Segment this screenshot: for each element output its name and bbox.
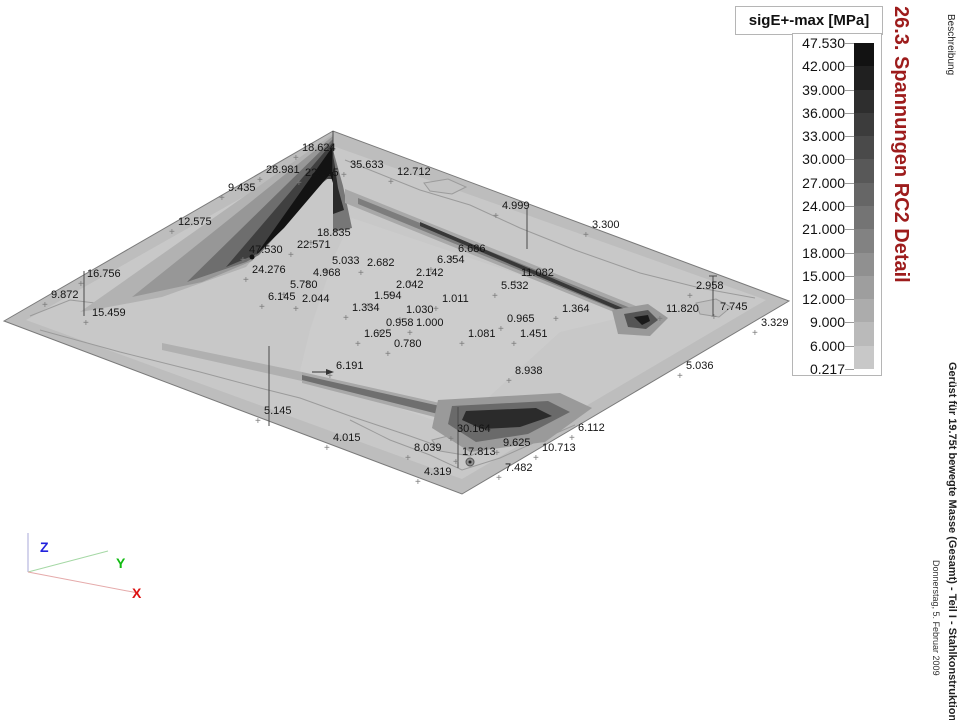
node-marker-icon: + — [42, 301, 48, 311]
legend-scale: 47.53042.00039.00036.00033.00030.00027.0… — [792, 33, 882, 376]
stress-value-label: 5.036 — [686, 360, 714, 372]
node-marker-icon: + — [494, 449, 500, 459]
legend-color-band — [854, 159, 874, 182]
node-marker-icon: + — [506, 377, 512, 387]
stress-value-label: 1.594 — [374, 290, 402, 302]
stress-value-label: 2.044 — [302, 293, 330, 305]
project-title: Gerüst für 19.75t bewegte Masse (Gesamt)… — [946, 362, 958, 720]
stress-value-label: 7.745 — [720, 301, 748, 313]
node-marker-icon: + — [78, 280, 84, 290]
stress-value-label: 4.968 — [313, 267, 341, 279]
node-marker-icon: + — [257, 176, 263, 186]
stress-value-label: 7.482 — [505, 462, 533, 474]
node-marker-icon: + — [657, 315, 663, 325]
node-marker-icon: + — [493, 212, 499, 222]
node-marker-icon: + — [243, 276, 249, 286]
report-page: Z Y X +18.624+28.981+22.195+35.633+12.71… — [0, 0, 960, 720]
stress-value-label: 2.142 — [416, 267, 444, 279]
node-marker-icon: + — [293, 305, 299, 315]
node-marker-icon: + — [459, 340, 465, 350]
node-marker-icon: + — [496, 474, 502, 484]
legend-level-value: 47.530 — [802, 35, 845, 51]
legend-tick — [845, 206, 854, 207]
legend-color-band — [854, 253, 874, 276]
stress-value-label: 1.364 — [562, 303, 590, 315]
legend-color-band — [854, 276, 874, 299]
legend-level-value: 0.217 — [810, 361, 845, 377]
node-marker-icon: + — [583, 231, 589, 241]
node-marker-icon: + — [448, 435, 454, 445]
stress-value-label: 16.756 — [87, 268, 121, 280]
legend-level-value: 39.000 — [802, 82, 845, 98]
stress-value-label: 2.682 — [367, 257, 395, 269]
stress-value-label: 5.780 — [290, 279, 318, 291]
legend-level-value: 18.000 — [802, 245, 845, 261]
stress-value-label: 28.981 — [266, 164, 300, 176]
stress-value-label: 24.276 — [252, 264, 286, 276]
legend-level-value: 6.000 — [810, 338, 845, 354]
node-marker-icon: + — [288, 251, 294, 261]
legend-level-value: 30.000 — [802, 151, 845, 167]
stress-value-label: 9.872 — [51, 289, 79, 301]
node-marker-icon: + — [569, 434, 575, 444]
stress-value-label: 9.435 — [228, 182, 256, 194]
axis-x-label: X — [132, 585, 142, 601]
stress-value-label: 2.958 — [696, 280, 724, 292]
stress-value-label: 1.625 — [364, 328, 392, 340]
legend-tick — [845, 299, 854, 300]
legend-tick — [845, 136, 854, 137]
stress-value-label: 4.015 — [333, 432, 361, 444]
legend-tick — [845, 159, 854, 160]
node-marker-icon: + — [687, 292, 693, 302]
node-marker-icon: + — [492, 292, 498, 302]
legend-color-band — [854, 43, 874, 66]
node-marker-icon: + — [343, 314, 349, 324]
stress-value-label: 1.334 — [352, 302, 380, 314]
stress-value-label: 5.145 — [264, 405, 292, 417]
axis-z-label: Z — [40, 539, 49, 555]
stress-value-label: 6.354 — [437, 254, 465, 266]
legend-color-band — [854, 113, 874, 136]
print-date: Donnerstag, 5. Februar 2009 — [931, 560, 941, 676]
legend-level-value: 12.000 — [802, 291, 845, 307]
stress-value-label: 6.112 — [578, 422, 605, 434]
stress-value-label: 5.532 — [501, 280, 529, 292]
stress-value-label: 3.329 — [761, 317, 789, 329]
node-marker-icon: + — [498, 325, 504, 335]
legend-tick — [845, 253, 854, 254]
legend-color-band — [854, 90, 874, 113]
stress-value-label: 12.712 — [397, 166, 431, 178]
legend-color-band — [854, 346, 874, 369]
stress-value-label: 3.300 — [592, 219, 620, 231]
stress-value-label: 8.039 — [414, 442, 442, 454]
node-marker-icon: + — [385, 350, 391, 360]
legend-level-value: 36.000 — [802, 105, 845, 121]
legend-tick — [845, 276, 854, 277]
legend-color-band — [854, 322, 874, 345]
legend-color-band — [854, 136, 874, 159]
legend-color-band — [854, 229, 874, 252]
legend-level-value: 9.000 — [810, 314, 845, 330]
stress-value-label: 8.938 — [515, 365, 543, 377]
description-column-header: Beschreibung — [945, 14, 956, 75]
stress-value-label: 1.011 — [442, 293, 469, 305]
node-marker-icon: + — [296, 179, 302, 189]
legend-level-value: 27.000 — [802, 175, 845, 191]
stress-value-label: 15.459 — [92, 307, 126, 319]
stress-value-label: 5.033 — [332, 255, 360, 267]
node-marker-icon: + — [511, 340, 517, 350]
stress-value-label: 4.999 — [502, 200, 530, 212]
stress-value-label: 12.575 — [178, 216, 212, 228]
stress-value-label: 1.000 — [416, 317, 444, 329]
node-marker-icon: + — [553, 315, 559, 325]
node-marker-icon: + — [169, 228, 175, 238]
legend-title-text: sigE+-max [MPa] — [749, 12, 869, 29]
legend-tick — [845, 113, 854, 114]
stress-value-label: 30.164 — [457, 423, 491, 435]
stress-value-label: 17.813 — [462, 446, 496, 458]
node-marker-icon: + — [453, 458, 459, 468]
node-marker-icon: + — [355, 340, 361, 350]
node-marker-icon: + — [293, 154, 299, 164]
node-marker-icon: + — [219, 194, 225, 204]
axis-triad-icon: Z Y X — [28, 533, 142, 601]
node-marker-icon: + — [752, 329, 758, 339]
stress-value-label: 1.081 — [468, 328, 496, 340]
node-marker-icon: + — [415, 478, 421, 488]
axis-y-label: Y — [116, 555, 126, 571]
stress-value-label: 18.835 — [317, 227, 351, 239]
stress-value-label: 6.191 — [336, 360, 364, 372]
legend-tick — [845, 66, 854, 67]
stress-value-label: 9.625 — [503, 437, 531, 449]
legend-tick — [845, 322, 854, 323]
legend-color-band — [854, 66, 874, 89]
node-marker-icon: + — [255, 417, 261, 427]
legend-tick — [845, 90, 854, 91]
legend-level-value: 42.000 — [802, 58, 845, 74]
node-marker-icon: + — [327, 372, 333, 382]
node-marker-icon: + — [83, 319, 89, 329]
stress-value-label: 47.530 — [249, 244, 283, 256]
legend-title: sigE+-max [MPa] — [735, 6, 883, 35]
stress-value-label: 35.633 — [350, 159, 384, 171]
stress-value-label: 22.195 — [305, 167, 339, 179]
legend-tick — [845, 229, 854, 230]
node-marker-icon: + — [405, 454, 411, 464]
node-marker-icon: + — [324, 444, 330, 454]
legend-color-band — [854, 183, 874, 206]
legend-level-value: 15.000 — [802, 268, 845, 284]
legend-tick — [845, 43, 854, 44]
stress-value-label: 18.624 — [302, 142, 336, 154]
stress-value-label: 1.451 — [520, 328, 548, 340]
node-marker-icon: + — [533, 454, 539, 464]
node-marker-icon: + — [711, 313, 717, 323]
stress-value-label: 11.082 — [521, 267, 554, 279]
legend-color-band — [854, 206, 874, 229]
stress-value-label: 0.965 — [507, 313, 535, 325]
legend-level-value: 33.000 — [802, 128, 845, 144]
stress-value-label: 1.030 — [406, 304, 434, 316]
node-marker-icon: + — [259, 303, 265, 313]
legend-color-bar — [854, 43, 874, 369]
stress-value-label: 0.780 — [394, 338, 422, 350]
stress-value-label: 4.319 — [424, 466, 452, 478]
stress-value-label: 11.820 — [666, 303, 699, 315]
legend-tick — [845, 183, 854, 184]
node-marker-icon: + — [341, 171, 347, 181]
legend-color-band — [854, 299, 874, 322]
node-marker-icon: + — [677, 372, 683, 382]
stress-value-label: 22.571 — [297, 239, 331, 251]
legend-tick — [845, 346, 854, 347]
legend-tick — [845, 369, 854, 370]
node-marker-icon: + — [240, 256, 246, 266]
node-marker-icon: + — [433, 305, 439, 315]
node-marker-icon: + — [358, 269, 364, 279]
legend-level-value: 21.000 — [802, 221, 845, 237]
legend-level-value: 24.000 — [802, 198, 845, 214]
section-title: 26.3. Spannungen RC2 Detail — [889, 6, 912, 283]
node-marker-icon: + — [388, 178, 394, 188]
stress-value-label: 6.145 — [268, 291, 296, 303]
